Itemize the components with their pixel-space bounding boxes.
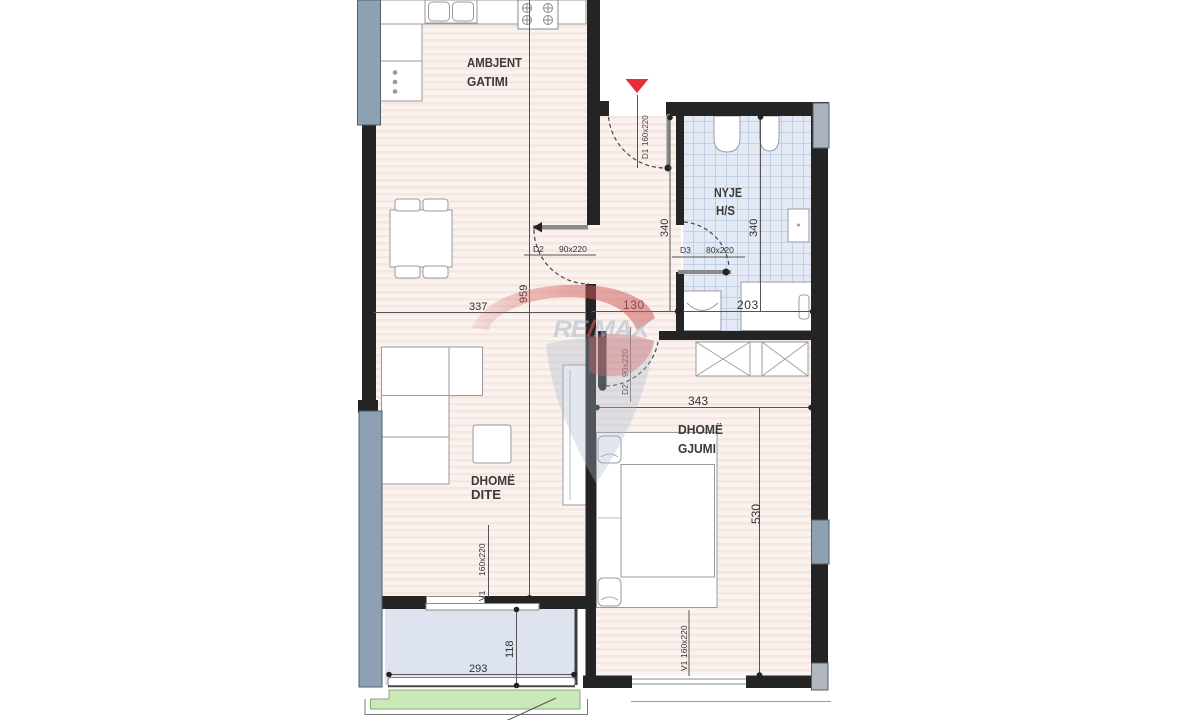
- svg-text:D2: D2: [533, 244, 544, 254]
- svg-text:DHOMË: DHOMË: [471, 473, 515, 488]
- svg-text:340: 340: [659, 219, 671, 237]
- svg-text:160x220: 160x220: [477, 543, 487, 576]
- svg-text:90x220: 90x220: [559, 244, 587, 254]
- svg-text:D3: D3: [680, 245, 691, 255]
- svg-text:DITE: DITE: [471, 487, 501, 502]
- svg-text:D1: D1: [641, 148, 650, 159]
- svg-text:GATIMI: GATIMI: [467, 74, 508, 89]
- svg-text:160x220: 160x220: [679, 625, 689, 658]
- svg-text:293: 293: [469, 663, 487, 675]
- svg-text:H/S: H/S: [716, 203, 735, 218]
- svg-text:AMBJENT: AMBJENT: [467, 55, 522, 70]
- svg-text:V1: V1: [679, 660, 689, 671]
- svg-text:118: 118: [504, 640, 516, 658]
- svg-text:160x220: 160x220: [641, 115, 650, 146]
- svg-text:V1: V1: [477, 590, 487, 601]
- svg-text:203: 203: [737, 298, 759, 312]
- svg-text:340: 340: [748, 219, 760, 237]
- svg-text:GJUMI: GJUMI: [678, 441, 716, 456]
- svg-text:DHOMË: DHOMË: [678, 422, 723, 437]
- svg-text:NYJE: NYJE: [714, 185, 742, 200]
- svg-text:80x220: 80x220: [706, 245, 734, 255]
- svg-text:530: 530: [749, 504, 763, 524]
- svg-text:343: 343: [688, 394, 708, 408]
- svg-text:RE/MAX: RE/MAX: [553, 316, 651, 343]
